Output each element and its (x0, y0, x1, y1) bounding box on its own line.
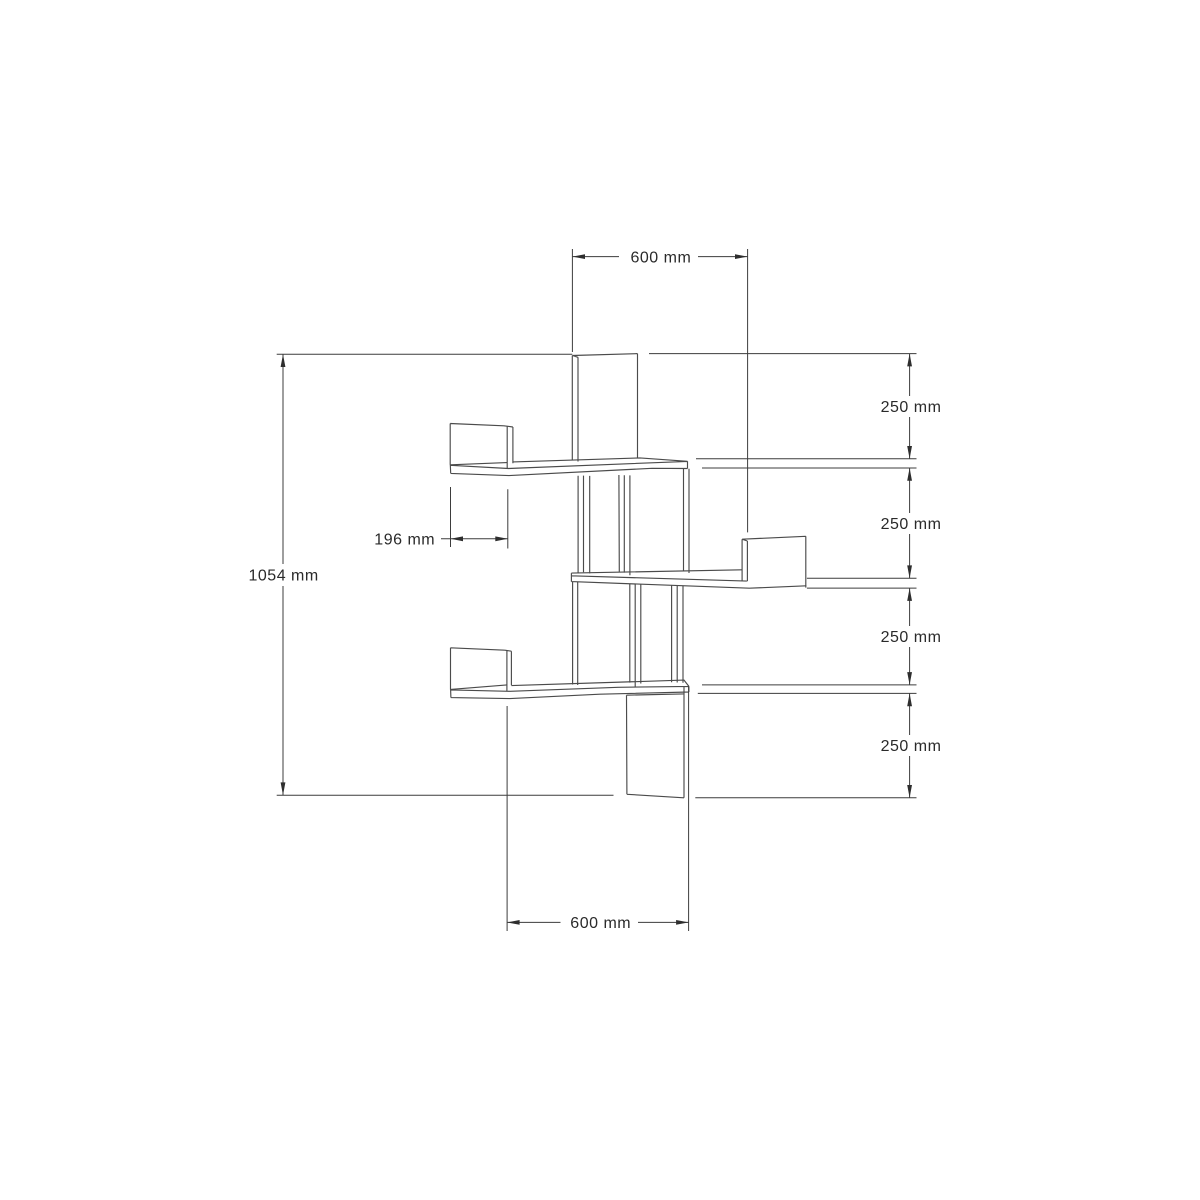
svg-text:1054 mm: 1054 mm (249, 568, 319, 585)
svg-text:600 mm: 600 mm (631, 250, 692, 267)
svg-text:250 mm: 250 mm (881, 629, 942, 646)
svg-text:250 mm: 250 mm (881, 516, 942, 533)
svg-text:196 mm: 196 mm (374, 532, 435, 549)
svg-text:600 mm: 600 mm (570, 915, 631, 932)
svg-text:250 mm: 250 mm (881, 738, 942, 755)
svg-text:250 mm: 250 mm (881, 399, 942, 416)
